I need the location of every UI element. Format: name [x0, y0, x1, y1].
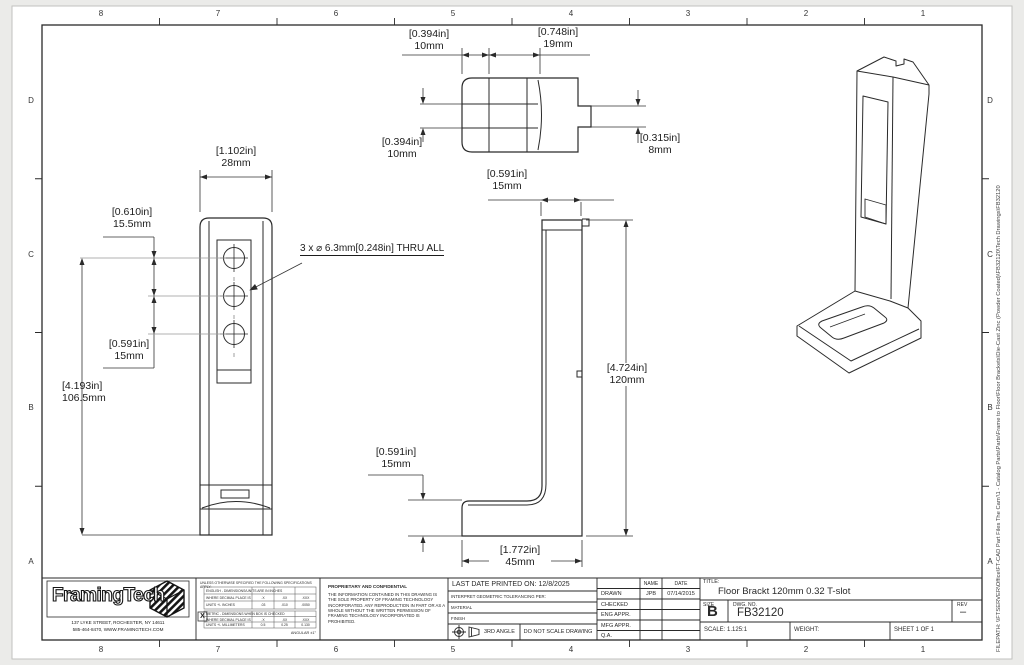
- zone-col-label: 7: [208, 9, 228, 18]
- dim-side-base: [0.591in] 15mm: [366, 447, 426, 470]
- address-line-2: 585-464-8470, WWW.FRAMINGTECH.COM: [48, 627, 188, 632]
- zone-row-label: A: [21, 557, 41, 566]
- zone-col-label: 8: [91, 645, 111, 654]
- tolerance-english-title: ENGLISH - DIMENSIONS/UNITS ARE IN INCHES: [206, 589, 282, 593]
- material-label: MATERIAL: [451, 605, 472, 610]
- dim-front-hole-pitch: [0.591in] 15mm: [100, 339, 158, 362]
- last-printed-label: LAST DATE PRINTED ON: 12/8/2025: [452, 581, 570, 588]
- dim-side-height: [4.724in] 120mm: [594, 363, 660, 386]
- zone-col-label: 5: [443, 9, 463, 18]
- dim-inches: [0.394in]: [398, 29, 460, 41]
- approval-row-label: DRAWN: [601, 591, 622, 597]
- third-angle-label: 3RD ANGLE: [484, 629, 515, 635]
- zone-row-label: D: [21, 96, 41, 105]
- drawing-title: Floor Brackt 120mm 0.32 T-slot: [718, 586, 850, 597]
- tolerance-value: 0.5: [252, 623, 274, 627]
- zone-col-label: 1: [913, 9, 933, 18]
- proprietary-heading: PROPRIETARY AND CONFIDENTIAL: [328, 584, 407, 589]
- zone-col-label: 6: [326, 9, 346, 18]
- zone-col-label: 7: [208, 645, 228, 654]
- zone-col-label: 5: [443, 645, 463, 654]
- tolerance-place-label: WHERE DECIMAL PLACE IS: [206, 618, 251, 622]
- approval-drawn-name: JPB: [640, 591, 662, 597]
- dim-inches: [0.315in]: [629, 133, 691, 145]
- tolerance-col: .XX: [274, 596, 295, 600]
- metric-checkbox: X: [198, 612, 207, 621]
- dim-front-width: [1.102in] 28mm: [207, 146, 265, 169]
- dim-inches: [0.591in]: [366, 447, 426, 459]
- tolerance-angular: ANGULAR ±1°: [272, 631, 316, 635]
- approvals-date-header: DATE: [662, 581, 700, 587]
- drawing-sheet: 8 7 6 5 4 3 2 1 8 7 6 5 4 3 2 1 D C B A …: [0, 0, 1024, 665]
- interpret-label: INTERPRET GEOMETRIC TOLERANCING PER:: [451, 594, 546, 599]
- dim-mm: 28mm: [207, 158, 265, 170]
- tolerance-metric-title: METRIC - DIMENSIONS WHEN BOX IS CHECKED: [206, 612, 285, 616]
- dim-mm: 106.5mm: [62, 393, 142, 405]
- approval-row-label: ENG APPR.: [601, 612, 631, 618]
- dim-mm: 15mm: [477, 181, 537, 193]
- dwg-no-value: FB32120: [737, 607, 784, 619]
- zone-col-label: 8: [91, 9, 111, 18]
- dim-front-top-offset: [0.610in] 15.5mm: [99, 207, 165, 230]
- approval-row-label: Q.A.: [601, 633, 612, 639]
- dim-mm: 10mm: [371, 149, 433, 161]
- tolerance-value: .0050: [295, 603, 316, 607]
- tolerance-value: 0.25: [274, 623, 295, 627]
- dim-inches: [0.748in]: [527, 27, 589, 39]
- zone-col-label: 2: [796, 645, 816, 654]
- zone-col-label: 1: [913, 645, 933, 654]
- dim-inches: [1.772in]: [491, 545, 549, 557]
- do-not-scale-label: DO NOT SCALE DRAWING: [521, 629, 595, 635]
- dim-top-slot: [0.394in] 10mm: [371, 137, 433, 160]
- approvals-name-header: NAME: [640, 581, 662, 587]
- scale-label: SCALE: 1.125:1: [704, 627, 747, 633]
- approval-row-label: MFG APPR.: [601, 623, 631, 629]
- dim-top-width2: [0.748in] 19mm: [527, 27, 589, 50]
- dim-mm: 120mm: [596, 375, 658, 387]
- address-line-1: 137 LYKE STREET, ROCHESTER, NY 14611: [48, 620, 188, 625]
- dim-inches: [0.394in]: [371, 137, 433, 149]
- framingtech-logo-text: FramingTech: [52, 585, 164, 607]
- zone-col-label: 6: [326, 645, 346, 654]
- zone-col-label: 4: [561, 9, 581, 18]
- tolerance-col: .XXX: [295, 618, 316, 622]
- dim-top-tab: [0.315in] 8mm: [629, 133, 691, 156]
- tolerance-col: .XXX: [295, 596, 316, 600]
- dim-mm: 45mm: [491, 557, 549, 569]
- tolerance-metric-units: UNITS +/- MILLIMETERS: [206, 623, 245, 627]
- finish-label: FINISH: [451, 616, 465, 621]
- tolerance-place-label: WHERE DECIMAL PLACE IS: [206, 596, 251, 600]
- dim-mm: 19mm: [527, 39, 589, 51]
- dim-mm: 10mm: [398, 41, 460, 53]
- dim-top-width1: [0.394in] 10mm: [398, 29, 460, 52]
- dim-inches: [1.102in]: [207, 146, 265, 158]
- weight-label: WEIGHT:: [794, 627, 819, 633]
- title-label: TITLE:: [703, 579, 720, 585]
- dim-front-height: [4.193in] 106.5mm: [62, 381, 142, 404]
- dim-mm: 15mm: [100, 351, 158, 363]
- tolerance-english-units: UNITS +/- INCHES: [206, 603, 235, 607]
- filepath-text: FILEPATH: \\FTSERVER\Office\FT-CAD Part …: [996, 22, 1002, 652]
- dim-inches: [0.591in]: [477, 169, 537, 181]
- size-value: B: [707, 603, 718, 620]
- tolerance-col: .X: [252, 596, 274, 600]
- zone-col-label: 3: [678, 9, 698, 18]
- sheet-label: SHEET 1 OF 1: [894, 627, 934, 633]
- zone-col-label: 4: [561, 645, 581, 654]
- zone-row-label: C: [21, 250, 41, 259]
- dim-side-top: [0.591in] 15mm: [477, 169, 537, 192]
- dim-mm: 8mm: [629, 145, 691, 157]
- dim-side-depth: [1.772in] 45mm: [489, 545, 551, 568]
- tolerance-col: .XX: [274, 618, 295, 622]
- dim-mm: 15.5mm: [99, 219, 165, 231]
- zone-col-label: 3: [678, 645, 698, 654]
- dim-mm: 15mm: [366, 459, 426, 471]
- tolerance-col: .X: [252, 618, 274, 622]
- tolerance-value: .03: [252, 603, 274, 607]
- dim-inches: [0.591in]: [100, 339, 158, 351]
- dim-inches: [0.610in]: [99, 207, 165, 219]
- rev-value: –: [960, 606, 966, 618]
- hole-callout-note: 3 x ⌀ 6.3mm[0.248in] THRU ALL: [300, 243, 444, 256]
- approval-drawn-date: 07/14/2015: [662, 591, 700, 597]
- tolerance-value: 0.130: [295, 623, 316, 627]
- proprietary-body: THE INFORMATION CONTAINED IN THIS DRAWIN…: [328, 592, 445, 624]
- dim-inches: [4.193in]: [62, 381, 142, 393]
- dim-inches: [4.724in]: [596, 363, 658, 375]
- zone-col-label: 2: [796, 9, 816, 18]
- tolerance-heading: UNLESS OTHERWISE SPECIFIED THE FOLLOWING…: [200, 581, 318, 589]
- tolerance-value: .010: [274, 603, 295, 607]
- zone-row-label: B: [21, 403, 41, 412]
- approval-row-label: CHECKED: [601, 602, 628, 608]
